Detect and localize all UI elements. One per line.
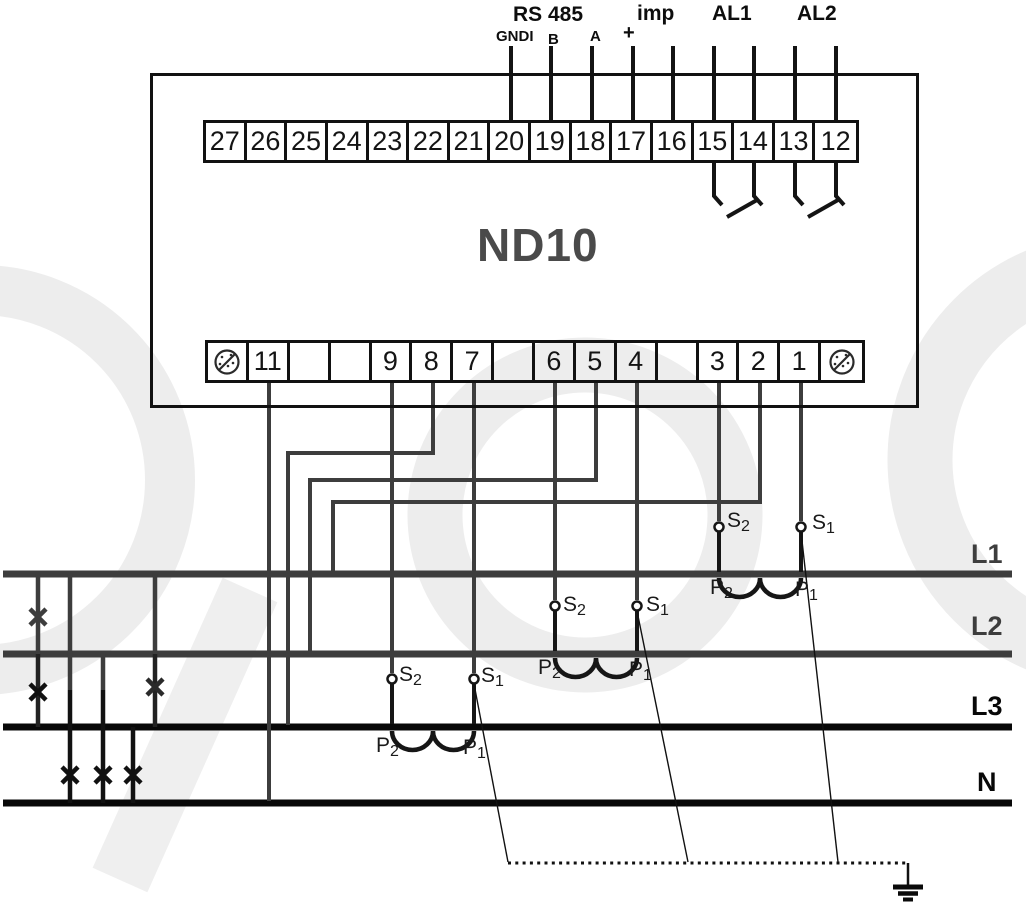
al1-label: AL1 [712, 3, 752, 24]
terminal-7: 7 [453, 343, 494, 380]
bus-label-l2: L2 [971, 613, 1003, 640]
terminal-blank [658, 343, 699, 380]
ct-l3-s2-label: S2 [399, 664, 422, 685]
imp-label: imp [637, 3, 674, 24]
terminal-16: 16 [653, 123, 694, 160]
al2-label: AL2 [797, 3, 837, 24]
ct-l1-p2-label: P2 [710, 577, 733, 598]
device-model: ND10 [477, 222, 599, 268]
terminal-strip-top: 27 26 25 24 23 22 21 20 19 18 17 16 15 1… [203, 120, 859, 163]
terminal-24: 24 [328, 123, 369, 160]
seal-screw-icon [208, 343, 249, 380]
ct-l2-s2-label: S2 [563, 594, 586, 615]
ct-l2-p2-label: P2 [538, 657, 561, 678]
terminal-26: 26 [247, 123, 288, 160]
ct-l2-p1-label: P1 [629, 659, 652, 680]
ct-l3-s1-label: S1 [481, 665, 504, 686]
terminal-1: 1 [780, 343, 821, 380]
bus-label-l3: L3 [971, 693, 1003, 720]
ct-l1-p1-label: P1 [795, 579, 818, 600]
plus-label: + [623, 23, 635, 43]
terminal-8: 8 [412, 343, 453, 380]
terminal-strip-bottom: 11 9 8 7 6 5 4 3 2 1 [205, 340, 865, 383]
terminal-9: 9 [372, 343, 413, 380]
terminal-11: 11 [249, 343, 290, 380]
terminal-4: 4 [617, 343, 658, 380]
ct-l3-p1-label: P1 [463, 737, 486, 758]
bus-label-l1: L1 [971, 541, 1003, 568]
terminal-6: 6 [535, 343, 576, 380]
a-label: A [590, 29, 601, 44]
terminal-20: 20 [490, 123, 531, 160]
bus-label-n: N [977, 769, 997, 796]
terminal-27: 27 [206, 123, 247, 160]
terminal-blank [290, 343, 331, 380]
terminal-3: 3 [699, 343, 740, 380]
ct-l3-p2-label: P2 [376, 735, 399, 756]
terminal-18: 18 [572, 123, 613, 160]
terminal-12: 12 [815, 123, 856, 160]
wiring-diagram: ND10 27 26 25 24 23 22 21 20 19 18 17 16… [0, 0, 1026, 903]
terminal-21: 21 [450, 123, 491, 160]
terminal-23: 23 [369, 123, 410, 160]
terminal-13: 13 [775, 123, 816, 160]
terminal-blank [331, 343, 372, 380]
terminal-14: 14 [734, 123, 775, 160]
terminal-22: 22 [409, 123, 450, 160]
b-label: B [548, 32, 559, 47]
rs485-label: RS 485 [513, 4, 583, 25]
terminal-17: 17 [612, 123, 653, 160]
terminal-2: 2 [739, 343, 780, 380]
earth-ground-icon [893, 887, 923, 900]
terminal-15: 15 [694, 123, 735, 160]
seal-screw-icon [821, 343, 862, 380]
terminal-25: 25 [287, 123, 328, 160]
gnd-label: GNDI [496, 29, 534, 44]
terminal-19: 19 [531, 123, 572, 160]
terminal-blank [494, 343, 535, 380]
ct-l1-s2-label: S2 [727, 510, 750, 531]
terminal-5: 5 [576, 343, 617, 380]
ct-l2-s1-label: S1 [646, 594, 669, 615]
ct-l1-s1-label: S1 [812, 512, 835, 533]
